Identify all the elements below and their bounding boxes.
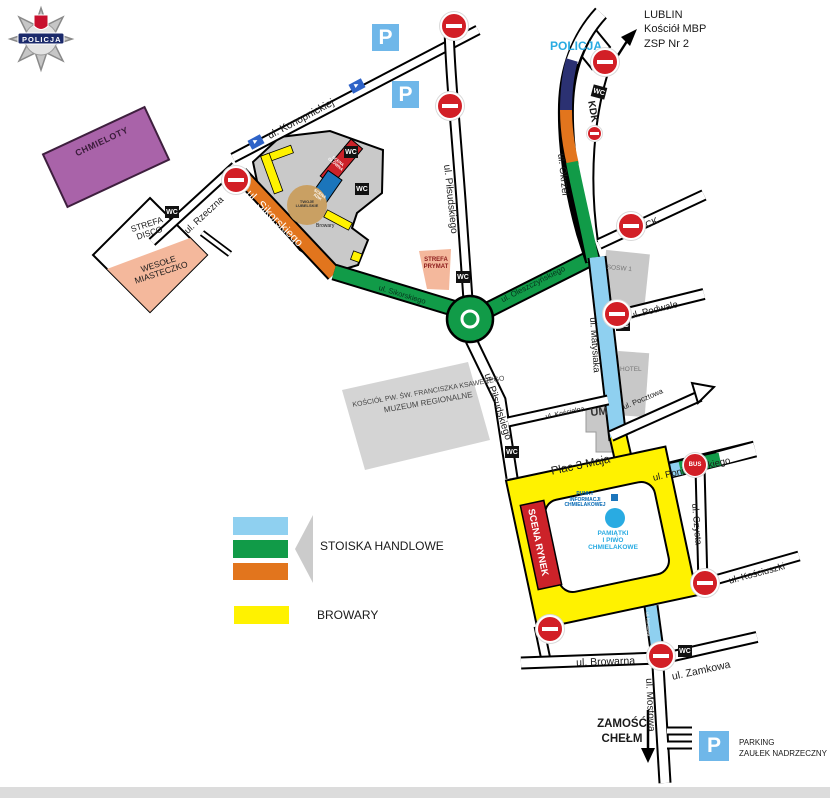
street-rzeczna-stub-fill (202, 233, 230, 254)
bus-stop-badge: BUS (683, 453, 707, 477)
zamosc-arrowhead (641, 748, 655, 763)
roundabout-center (462, 311, 478, 327)
event-map: POLICJA ul. Konopnickiej ul. Piłsudskieg… (0, 0, 830, 798)
wc-badge-8: WC (165, 206, 179, 218)
punkt-informacji-label: PUNKT INFORMACJI CHMIELAKOWEJ (560, 492, 610, 509)
pamiatki-dot (605, 508, 625, 528)
legend-bar-green (233, 540, 288, 558)
no-entry-sign-2 (436, 92, 464, 120)
police-banner-text: POLICJA (22, 35, 62, 44)
street-okrzei-orange (566, 110, 573, 165)
no-entry-sign-4 (617, 212, 645, 240)
pamiatki-line1: PAMIĄTKI (578, 530, 648, 537)
street-label-czysta: ul. Czysta (689, 503, 703, 545)
tan-circle-line2: LUBELSKIE (292, 204, 322, 208)
wc-badge-6: WC (505, 446, 519, 458)
parking-note: PARKING ZAUŁEK NADRZECZNY (739, 737, 827, 759)
street-label-browarna: ul. Browarna (576, 656, 635, 670)
zamosc-chelm-label: ZAMOŚĆ CHEŁM (596, 717, 648, 747)
police-logo: POLICJA (10, 8, 72, 70)
parking-p-badge-2: P (392, 81, 419, 108)
no-entry-sign-6 (691, 569, 719, 597)
parking-p-badge-3: P (699, 731, 729, 761)
no-entry-sign-8 (647, 642, 675, 670)
zamosc-line1: ZAMOŚĆ (596, 717, 648, 732)
legend-browary-label: BROWARY (317, 609, 378, 622)
pamiatki-label: PAMIĄTKI I PIWO CHMIELAKOWE (578, 530, 648, 551)
tan-circle-label: TWOJE LUBELSKIE (292, 200, 322, 209)
parking-line2: ZAUŁEK NADRZECZNY (739, 748, 827, 759)
lublin-line3: ZSP Nr 2 (644, 37, 706, 51)
no-entry-sign-7 (536, 615, 564, 643)
prymat-line2: PRYMAT (421, 264, 451, 271)
street-label-mostowa-blue: ul. Mostowa (644, 612, 651, 636)
wc-badge-1: WC (344, 146, 358, 158)
street-okrzei-navy (566, 60, 572, 112)
prymat-line1: STREFA (421, 257, 451, 264)
info-point-marker (611, 494, 618, 501)
police-shield (34, 15, 48, 30)
wc-badge-3: WC (456, 271, 470, 283)
no-entry-sign-1 (440, 12, 468, 40)
wc-badge-7: WC (678, 645, 692, 657)
legend-bar-blue (233, 517, 288, 535)
no-entry-sign-5 (603, 300, 631, 328)
lublin-line1: LUBLIN (644, 8, 706, 22)
wc-badge-2: WC (355, 183, 369, 195)
lublin-arrowhead (621, 29, 637, 46)
legend-stoiska-label: STOISKA HANDLOWE (320, 540, 444, 553)
um-label: UM (590, 406, 608, 420)
lublin-destination: LUBLIN Kościół MBP ZSP Nr 2 (644, 8, 706, 51)
punkt-line3: CHMIELAKOWEJ (560, 503, 610, 509)
bottom-strip (0, 787, 830, 798)
strefa-prymat-label: STREFA PRYMAT (421, 257, 451, 270)
legend-bar-orange (233, 563, 288, 580)
legend-bar-yellow (234, 606, 289, 624)
no-entry-sign-3 (591, 48, 619, 76)
zamosc-line2: CHEŁM (596, 732, 648, 747)
browary-tiny-label: Browary (316, 224, 334, 230)
pamiatki-line2: I PIWO (578, 537, 648, 544)
parking-line1: PARKING (739, 737, 827, 748)
no-entry-sign-9 (222, 166, 250, 194)
hotel-label: HOTEL (620, 366, 642, 373)
parking-p-badge-1: P (372, 24, 399, 51)
no-entry-sign-kdk (587, 126, 602, 141)
chmieloty-zone (43, 107, 169, 207)
pamiatki-line3: CHMIELAKOWE (578, 544, 648, 551)
legend-arrow (295, 515, 313, 583)
lublin-line2: Kościół MBP (644, 22, 706, 36)
